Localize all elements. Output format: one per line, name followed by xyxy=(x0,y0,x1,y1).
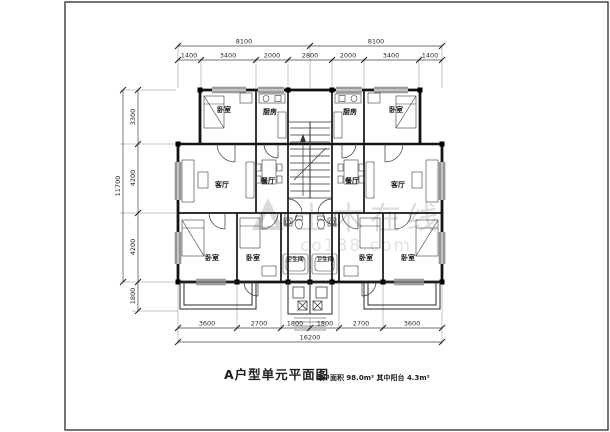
dim-left-seg-1: 4200 xyxy=(129,170,137,187)
dim-top-seg-6: 1400 xyxy=(422,52,439,60)
watermark-text: 土木在线 xyxy=(296,201,444,237)
dim-top-overall-left: 8100 xyxy=(236,38,253,46)
dim-top-seg-3: 2800 xyxy=(302,52,319,60)
stair xyxy=(288,122,332,198)
dim-bottom-seg-0: 3600 xyxy=(199,320,216,328)
room-label-kitchen-l: 厨房 xyxy=(263,107,277,116)
room-label-dining-r: 餐厅 xyxy=(344,176,359,185)
room-label-bedroom-bl1: 卧室 xyxy=(205,253,219,262)
watermark-subtext: co188.com xyxy=(300,236,412,256)
room-label-bedroom-br2: 卧室 xyxy=(401,253,415,262)
floorplan-drawing: 土木在线 co188.com xyxy=(0,0,610,432)
room-label-bedroom-tr: 卧室 xyxy=(389,105,403,114)
dim-top-seg-5: 3400 xyxy=(383,52,400,60)
dim-top-seg-4: 2000 xyxy=(340,52,357,60)
room-label-dining-l: 餐厅 xyxy=(260,176,275,185)
dim-left-seg-2: 4200 xyxy=(129,239,137,256)
dim-bottom-seg-4: 2700 xyxy=(353,320,370,328)
room-label-bedroom-br1: 卧室 xyxy=(359,253,373,262)
room-label-living-l: 客厅 xyxy=(214,180,229,189)
title-block: A户型单元平面图 每户面积 98.0m² 其中阳台 4.3m² xyxy=(224,367,430,382)
dim-bottom-overall: 16200 xyxy=(300,334,321,342)
room-label-living-r: 客厅 xyxy=(390,180,405,189)
dim-left-seg-3: 1800 xyxy=(129,288,137,305)
dim-left-seg-0: 3300 xyxy=(129,109,137,126)
room-label-bedroom-bl2: 卧室 xyxy=(246,253,260,262)
area-note: 每户面积 98.0m² 其中阳台 4.3m² xyxy=(316,373,430,382)
dim-bottom-seg-5: 3600 xyxy=(404,320,421,328)
dimension-texts: 8100 8100 1400 3400 2000 2800 2000 3400 … xyxy=(114,38,438,342)
dim-top-seg-0: 1400 xyxy=(181,52,198,60)
room-label-bedroom-tl: 卧室 xyxy=(217,105,231,114)
dim-bottom-seg-1: 2700 xyxy=(251,320,268,328)
room-label-bath-r: 卫生间 xyxy=(316,255,334,263)
drawing-title: A户型单元平面图 xyxy=(224,367,329,382)
dim-left-overall: 11700 xyxy=(114,176,122,197)
dim-top-overall-right: 8100 xyxy=(368,38,385,46)
dim-top-seg-1: 3400 xyxy=(220,52,237,60)
room-label-kitchen-r: 厨房 xyxy=(343,107,357,116)
dim-top-seg-2: 2000 xyxy=(264,52,281,60)
drawing-sheet: 土木在线 co188.com xyxy=(0,0,610,432)
room-label-bath-l: 卫生间 xyxy=(286,255,304,263)
